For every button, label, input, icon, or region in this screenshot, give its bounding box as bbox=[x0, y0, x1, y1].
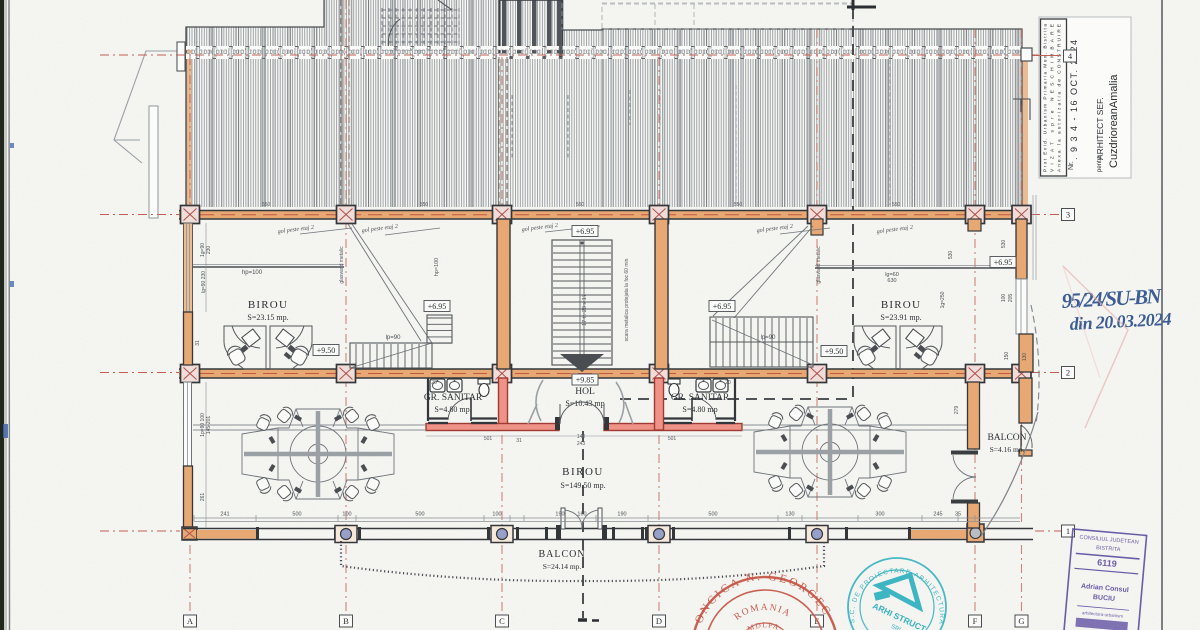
svg-text:31: 31 bbox=[195, 340, 201, 346]
svg-text:S=4.16 mp.: S=4.16 mp. bbox=[990, 445, 1025, 454]
svg-text:550: 550 bbox=[892, 202, 901, 208]
svg-text:S=23.15 mp.: S=23.15 mp. bbox=[247, 313, 288, 322]
svg-text:150: 150 bbox=[1004, 352, 1010, 361]
svg-text:scara metalica protejata la fo: scara metalica protejata la foc 60 min bbox=[624, 258, 630, 341]
svg-text:279: 279 bbox=[954, 406, 960, 415]
svg-text:245: 245 bbox=[933, 512, 942, 518]
svg-text:glasvand metalic: glasvand metalic bbox=[816, 246, 822, 284]
svg-text:230: 230 bbox=[206, 246, 212, 255]
svg-text:lp=90: lp=90 bbox=[386, 335, 402, 341]
svg-text:1g=250: 1g=250 bbox=[940, 291, 946, 308]
svg-text:S=10.43 mp: S=10.43 mp bbox=[565, 399, 604, 408]
svg-text:S=24.14 mp.: S=24.14 mp. bbox=[543, 562, 582, 571]
svg-text:243: 243 bbox=[577, 441, 586, 447]
svg-text:501: 501 bbox=[484, 436, 493, 442]
svg-text:C: C bbox=[499, 616, 505, 626]
svg-text:CuzdrioreanAmalia: CuzdrioreanAmalia bbox=[1108, 74, 1120, 168]
svg-text:BALCON: BALCON bbox=[987, 433, 1026, 443]
svg-text:BALCON: BALCON bbox=[538, 549, 585, 560]
svg-text:140: 140 bbox=[577, 434, 586, 440]
svg-text:B: B bbox=[343, 616, 349, 626]
svg-text:S=4.80 mp: S=4.80 mp bbox=[682, 405, 717, 414]
svg-text:550: 550 bbox=[576, 202, 585, 208]
svg-text:100: 100 bbox=[1001, 294, 1007, 303]
svg-text:glasvand metalic: glasvand metalic bbox=[339, 246, 345, 284]
svg-text:145-201: 145-201 bbox=[206, 416, 212, 435]
svg-text:+9.50: +9.50 bbox=[825, 347, 844, 356]
svg-text:100: 100 bbox=[342, 512, 351, 518]
svg-text:F: F bbox=[973, 616, 978, 626]
svg-text:hp=100: hp=100 bbox=[434, 258, 440, 277]
svg-text:ARHITECT SEF.: ARHITECT SEF. bbox=[1095, 97, 1105, 160]
svg-text:BIROU: BIROU bbox=[881, 299, 921, 311]
svg-text:3: 3 bbox=[1066, 210, 1070, 220]
svg-text:+6.95: +6.95 bbox=[994, 258, 1013, 267]
svg-text:GR. SANITAR: GR. SANITAR bbox=[671, 393, 730, 403]
svg-text:31: 31 bbox=[516, 438, 522, 444]
svg-text:6119: 6119 bbox=[1097, 557, 1117, 569]
svg-text:241: 241 bbox=[220, 512, 229, 518]
svg-text:+6.95: +6.95 bbox=[713, 302, 732, 311]
svg-text:550: 550 bbox=[734, 202, 743, 208]
svg-text:20: 20 bbox=[725, 380, 731, 386]
svg-text:A: A bbox=[187, 616, 194, 626]
svg-text:500: 500 bbox=[292, 512, 301, 518]
svg-text:2: 2 bbox=[1066, 368, 1070, 378]
svg-text:S=4.80 mp.: S=4.80 mp. bbox=[434, 405, 471, 414]
svg-text:+9.85: +9.85 bbox=[576, 376, 595, 385]
svg-text:500: 500 bbox=[708, 512, 717, 518]
svg-text:S=149.50 mp.: S=149.50 mp. bbox=[560, 481, 605, 490]
svg-text:300: 300 bbox=[875, 512, 884, 518]
svg-text:S=23.91 mp.: S=23.91 mp. bbox=[880, 313, 921, 322]
svg-text:1: 1 bbox=[1066, 526, 1070, 536]
svg-text:205: 205 bbox=[1008, 294, 1014, 303]
svg-text:BIROU: BIROU bbox=[562, 466, 604, 478]
svg-text:+6.95: +6.95 bbox=[576, 227, 595, 236]
svg-text:G: G bbox=[1018, 616, 1024, 626]
svg-text:190: 190 bbox=[617, 512, 626, 518]
svg-text:100: 100 bbox=[492, 512, 501, 518]
svg-text:530: 530 bbox=[1001, 240, 1007, 249]
svg-text:130: 130 bbox=[1022, 353, 1028, 362]
svg-text:261: 261 bbox=[200, 493, 206, 502]
svg-text:lp=90: lp=90 bbox=[761, 335, 777, 341]
svg-text:530: 530 bbox=[948, 251, 954, 260]
svg-text:+9.50: +9.50 bbox=[317, 346, 336, 355]
svg-text:D: D bbox=[656, 616, 662, 626]
svg-text:hp=100: hp=100 bbox=[242, 270, 263, 276]
svg-text:550: 550 bbox=[420, 202, 429, 208]
svg-text:+6.95: +6.95 bbox=[428, 302, 447, 311]
svg-text:160: 160 bbox=[577, 512, 586, 518]
svg-text:GR. SANITAR: GR. SANITAR bbox=[424, 393, 483, 403]
svg-text:501: 501 bbox=[668, 436, 677, 442]
svg-text:500: 500 bbox=[415, 512, 424, 518]
svg-text:17 tr. 28 x 17: 17 tr. 28 x 17 bbox=[582, 294, 588, 326]
svg-text:550: 550 bbox=[262, 202, 271, 208]
svg-text:20: 20 bbox=[431, 380, 437, 386]
svg-text:630: 630 bbox=[887, 278, 896, 284]
svg-text:HOL: HOL bbox=[575, 387, 595, 397]
svg-text:Prot Evid. Urbanism Primaria M: Prot Evid. Urbanism Primaria Mun. Bistri… bbox=[1043, 24, 1049, 172]
svg-text:BIROU: BIROU bbox=[248, 299, 288, 311]
svg-text:130: 130 bbox=[785, 512, 794, 518]
svg-text:190: 190 bbox=[555, 512, 564, 518]
svg-text:Nr.: Nr. bbox=[1068, 161, 1075, 170]
